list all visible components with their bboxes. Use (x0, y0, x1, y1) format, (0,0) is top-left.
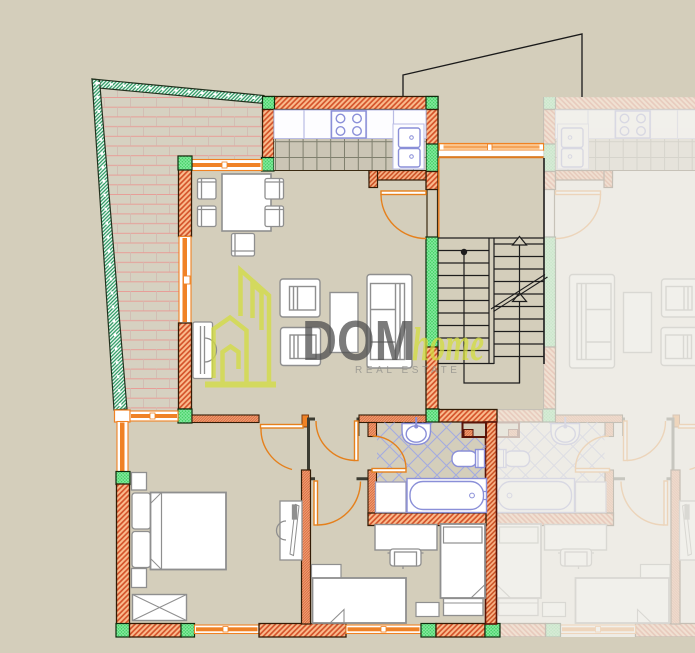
svg-text:DOM: DOM (302, 309, 415, 373)
svg-text:home: home (412, 318, 484, 371)
svg-text:REAL ESTATE: REAL ESTATE (355, 365, 461, 376)
